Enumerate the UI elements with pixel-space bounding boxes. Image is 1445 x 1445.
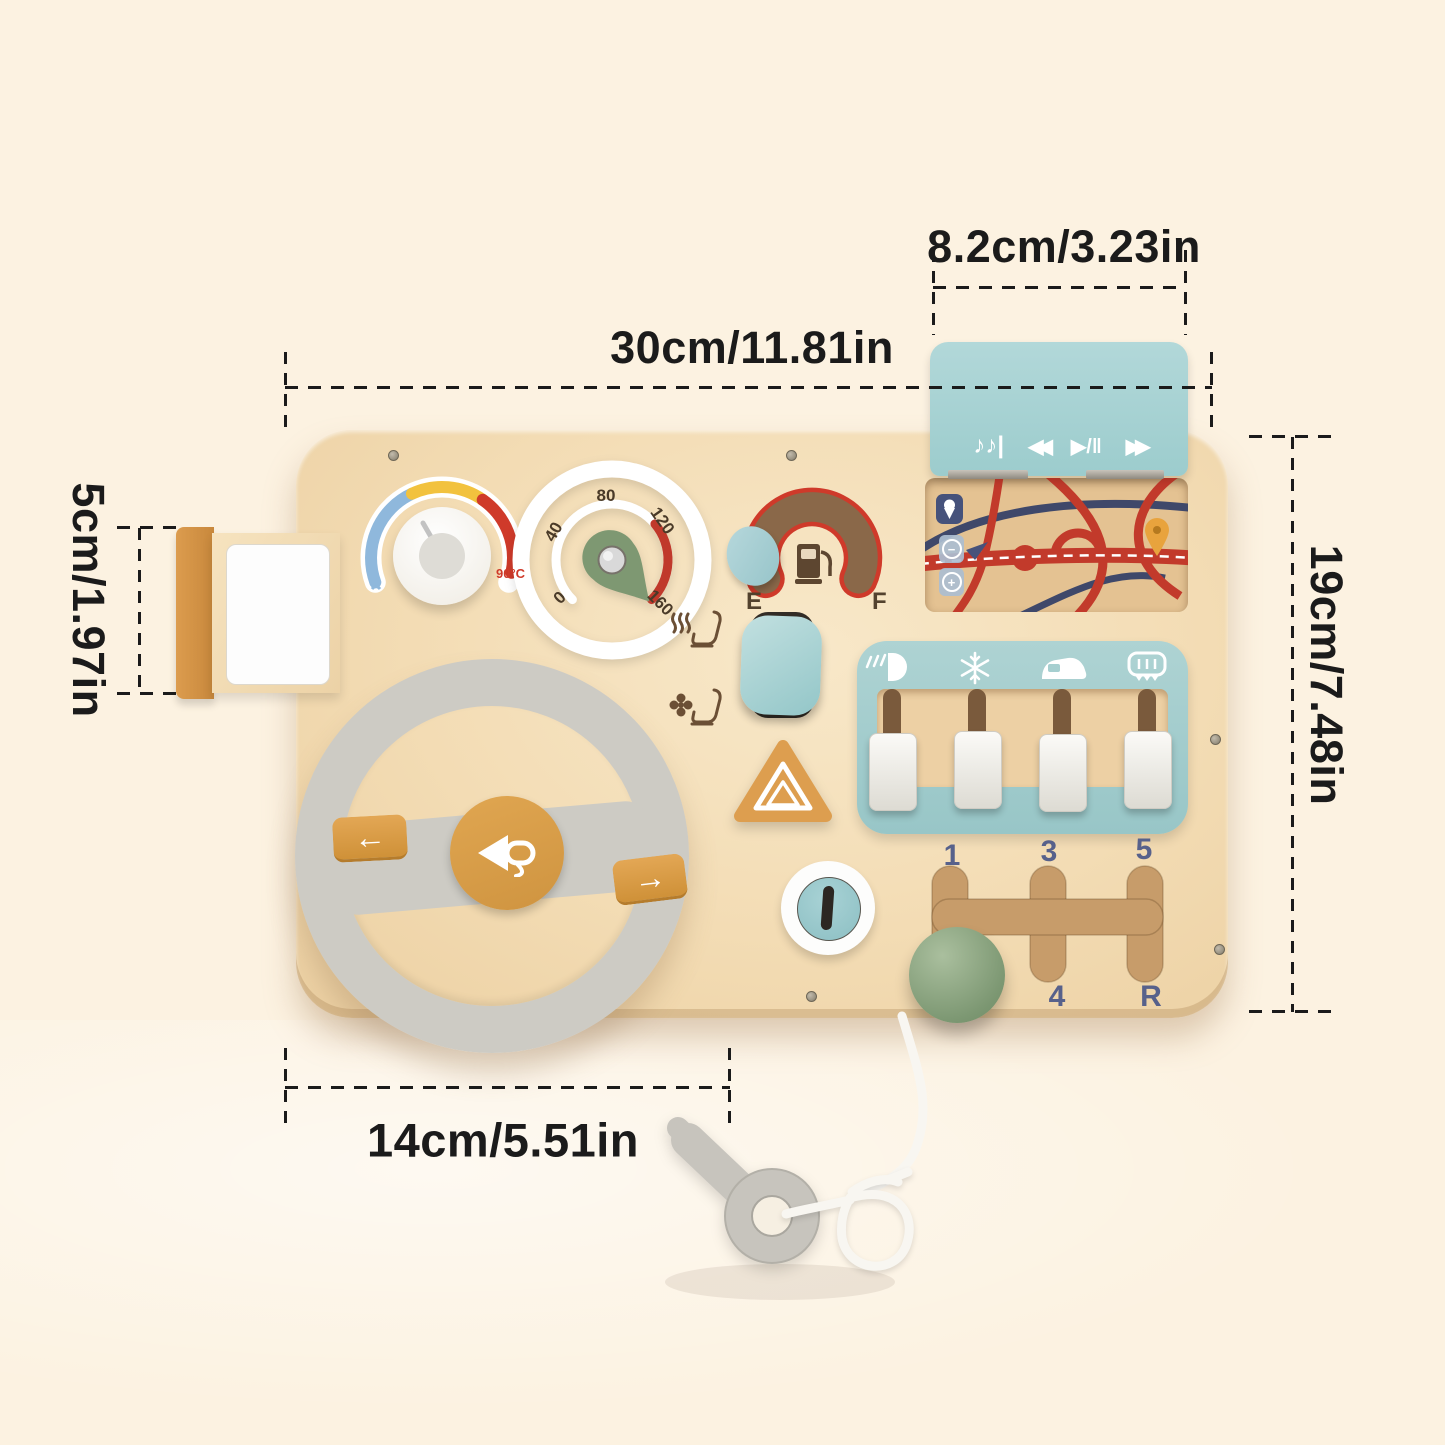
right-turn-signal-button[interactable]: →: [612, 853, 689, 906]
screw: [1210, 734, 1221, 745]
dim-board-height-label: 19cm/7.48in: [1300, 545, 1352, 806]
dim-player-width-label: 8.2cm/3.23in: [927, 221, 1201, 273]
fuel-empty-label: E: [746, 588, 762, 616]
dim-tick: [1210, 352, 1213, 430]
fast-forward-icon: ▶▶: [1126, 434, 1145, 459]
map-pin-orange-icon: [1142, 518, 1172, 560]
map-zoom-out-button: −: [939, 535, 964, 563]
dim-tick: [1249, 435, 1333, 438]
heated-seat-icon: [668, 608, 726, 656]
dim-tick: [1249, 1010, 1333, 1013]
left-arrow-icon: ←: [353, 818, 387, 857]
map-zoom-in-button: +: [939, 568, 964, 596]
fuel-full-label: F: [872, 588, 887, 616]
temperature-max-label: 90°C: [496, 566, 525, 581]
headlight-icon: [867, 653, 907, 681]
dim-tick: [117, 526, 179, 529]
dim-tick: [117, 692, 179, 695]
gear-label-5: 5: [1136, 833, 1153, 867]
dim-tick: [728, 1048, 731, 1132]
screw: [388, 450, 399, 461]
climate-icon-row: [857, 647, 1188, 691]
gear-label-R: R: [1140, 980, 1162, 1014]
dim-tick: [284, 1048, 287, 1132]
temperature-knob[interactable]: [393, 507, 491, 605]
media-player-controls: ♪♪| ◀◀ ▶/‖ ▶▶: [930, 432, 1188, 460]
fuel-pump-icon: [795, 538, 837, 586]
media-player-flap[interactable]: ♪♪| ◀◀ ▶/‖ ▶▶: [930, 342, 1188, 476]
table-surface-sheen: [0, 1020, 1445, 1445]
horn-icon: [476, 829, 540, 877]
screw: [806, 991, 817, 1002]
mirror-glass: [226, 544, 330, 685]
hinge: [948, 470, 1028, 479]
ac-slider[interactable]: [954, 731, 1002, 809]
product-image: { "annotations": { "board_width": "30cm/…: [0, 0, 1445, 1445]
car-icon: [1042, 658, 1086, 679]
ventilated-seat-icon: [668, 686, 726, 734]
seat-toggle-switch[interactable]: [739, 615, 822, 717]
recirculation-slider[interactable]: [1039, 734, 1087, 812]
map-pin-navy-icon: [936, 494, 964, 526]
snowflake-icon: [962, 653, 988, 683]
hinge: [1086, 470, 1164, 479]
dim-tick: [284, 352, 287, 430]
speedometer-tick-80: 80: [597, 486, 616, 506]
gear-label-4: 4: [1049, 980, 1066, 1014]
gear-label-1: 1: [944, 839, 961, 873]
play-pause-icon: ▶/‖: [1071, 434, 1102, 459]
dim-player-width-line: [933, 286, 1186, 289]
defrost-slider[interactable]: [1124, 731, 1172, 809]
music-notes-icon: ♪♪|: [973, 432, 1004, 460]
rewind-icon: ◀◀: [1028, 434, 1047, 459]
screw: [786, 450, 797, 461]
dim-wheel-width-line: [285, 1086, 730, 1089]
headlight-slider[interactable]: [869, 733, 917, 811]
climate-control-panel: [857, 641, 1188, 834]
dim-board-width-label: 30cm/11.81in: [610, 322, 894, 374]
dim-mirror-height-label: 5cm/1.97in: [62, 482, 114, 717]
dim-board-height-line: [1291, 437, 1294, 1012]
left-turn-signal-button[interactable]: ←: [332, 814, 408, 863]
temperature-knob-pointer: [393, 507, 491, 605]
mirror-handle-bar[interactable]: [176, 527, 214, 699]
horn-button[interactable]: [450, 796, 564, 910]
gear-shifter-knob[interactable]: [909, 927, 1005, 1023]
dim-wheel-width-label: 14cm/5.51in: [367, 1113, 639, 1168]
hazard-triangle-button[interactable]: [732, 738, 834, 828]
right-arrow-icon: →: [632, 858, 668, 899]
plus-icon: +: [942, 572, 962, 592]
defrost-icon: [1129, 653, 1165, 681]
minus-icon: −: [942, 539, 962, 559]
dim-mirror-height-line: [138, 528, 141, 694]
map-cursor-icon: [966, 542, 990, 562]
screw: [1214, 944, 1225, 955]
gear-label-3: 3: [1041, 835, 1058, 869]
dim-board-width-line: [285, 386, 1212, 389]
